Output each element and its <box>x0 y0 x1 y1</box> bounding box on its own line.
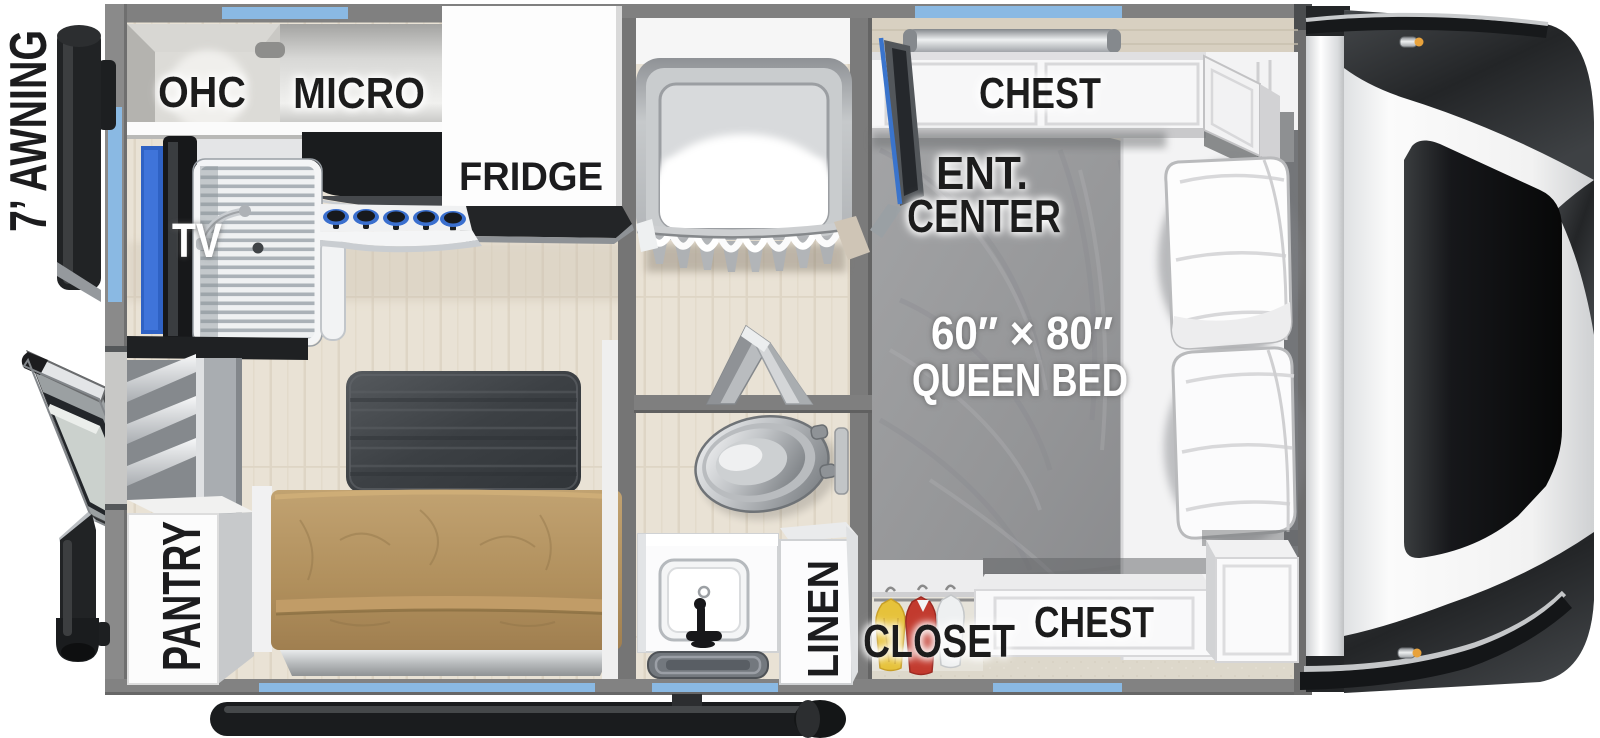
svg-text:LINEN: LINEN <box>799 560 848 678</box>
svg-text:MICRO: MICRO <box>293 69 425 118</box>
svg-text:CENTER: CENTER <box>907 190 1061 242</box>
svg-text:CHEST: CHEST <box>979 69 1101 118</box>
svg-text:60″ × 80″: 60″ × 80″ <box>931 307 1113 359</box>
svg-text:7’ AWNING: 7’ AWNING <box>0 30 58 232</box>
svg-text:CLOSET: CLOSET <box>863 615 1015 667</box>
svg-text:FRIDGE: FRIDGE <box>459 155 603 199</box>
svg-text:TV: TV <box>172 215 222 268</box>
svg-text:PANTRY: PANTRY <box>152 521 212 671</box>
svg-text:QUEEN BED: QUEEN BED <box>912 354 1128 406</box>
svg-text:CHEST: CHEST <box>1034 598 1154 647</box>
svg-text:OHC: OHC <box>158 68 246 117</box>
